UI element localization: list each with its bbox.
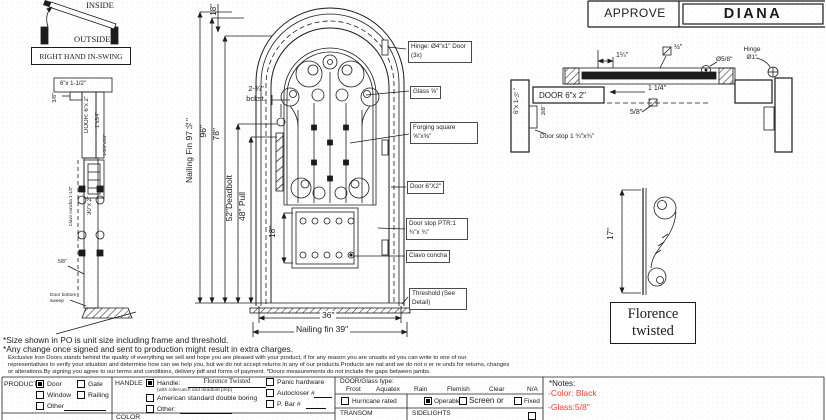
left-door-label: DOOR: 6"x 2": [84, 96, 90, 133]
product-railing-label: Railing: [88, 392, 109, 400]
fixed-label: Fixed: [524, 398, 540, 405]
handle-boring-label: American standard double boring: [157, 395, 257, 403]
hsec-door-stop-label: Door stop 1 ¾"x¾": [540, 133, 594, 140]
callout-forging-square: Forging square ⅝"x⅝": [410, 122, 478, 144]
glass-type-aquatex: Aquatex: [376, 386, 400, 393]
scroll-ornament-drawing: [622, 188, 676, 295]
dim-18-top: 18": [209, 4, 218, 16]
glass-type-header: DOOR/Glass type:: [340, 378, 394, 385]
left-panel-label: 30"x 2": [87, 196, 93, 215]
handle-value: Florence Twisted: [188, 378, 266, 386]
hurricane-rated-label: Hurricane rated: [352, 398, 397, 405]
notes-glass: -Glass:5/8": [548, 403, 590, 413]
left-lock-dim-label: 1-3/4"x3/4": [102, 134, 107, 156]
dim-48-pull: 48" Pull: [237, 192, 247, 221]
product-window-label: Window: [47, 392, 71, 400]
left-stop-label: 1"x3/4": [95, 112, 101, 128]
dim-52-deadbolt: 52"Deadbolt: [224, 175, 234, 222]
product-window-checkbox[interactable]: [36, 391, 44, 399]
fineprint-line3: or alterations.By signing you agree to o…: [8, 369, 431, 376]
callout-door-stop: Door stop PTR:1 ¾"x ¾": [406, 218, 468, 240]
hinge-symbol: [768, 67, 778, 77]
callout-threshold: Threshold (See Detail): [409, 288, 467, 310]
handle-option-label: Handle:: [157, 380, 180, 388]
footnote-change: *Any change once signed and sent to prod…: [3, 345, 293, 355]
hsec-dim-58: 5/8": [630, 109, 642, 117]
handle-boring-checkbox[interactable]: [146, 394, 154, 402]
fineprint-line2: representatives to verify your situation…: [8, 362, 509, 369]
handle-checkbox[interactable]: [146, 379, 154, 387]
left-offset-label: 3/8": [52, 93, 58, 103]
transom-label: TRANSOM: [340, 410, 373, 417]
dim-18-panel: 18": [268, 226, 277, 238]
approve-cell: APPROVE: [592, 7, 678, 21]
dim-nailing-fin-width: Nailing fin 39": [294, 325, 350, 335]
hsec-door-label: DOOR 6"x 2": [539, 91, 586, 100]
handle-other-checkbox[interactable]: [146, 405, 154, 413]
hsec-dim-phi58: Ø5/8": [716, 56, 732, 63]
scroll-dim-17: 17": [606, 228, 615, 240]
notes-header: *Notes:: [549, 379, 575, 388]
operable-checkbox[interactable]: [424, 397, 432, 405]
handle-section-label: HANDLE: [115, 380, 143, 388]
hsec-offset-label: 3/8": [541, 105, 547, 115]
callout-door: Door 6"X2": [407, 181, 444, 194]
glass-type-na: N/A: [527, 386, 538, 393]
callout-hinge: Hinge: Ø4"x1" Door (3x): [408, 41, 472, 63]
operable-label: Operable: [434, 398, 461, 405]
glass-type-rain: Rain: [414, 386, 427, 393]
callout-leader-lines: [350, 47, 409, 304]
fineprint-line1: Exclusive Iron Doors stands behind the q…: [8, 355, 466, 362]
panic-hardware-label: Panic hardware: [277, 379, 324, 387]
scroll-name-label: Florence twisted: [610, 302, 696, 344]
glass-type-frost: Frost: [346, 386, 361, 393]
product-gate-checkbox[interactable]: [77, 380, 85, 388]
pbar-checkbox[interactable]: [266, 400, 274, 408]
glass-type-clear: Clear: [489, 386, 505, 393]
product-section-label: PRODUCT:: [4, 381, 39, 389]
hurricane-rated-checkbox[interactable]: [341, 397, 349, 405]
screen-checkbox[interactable]: [459, 397, 467, 405]
sidelights-checkbox[interactable]: [528, 412, 536, 420]
pbar-field[interactable]: [306, 407, 326, 409]
dim-96: 96": [198, 125, 208, 137]
autocloser-field[interactable]: [314, 396, 332, 398]
screen-label: Screen or: [469, 396, 504, 405]
sidelights-label: SIDELIGHTS: [412, 410, 451, 417]
inside-label: INSIDE: [86, 1, 114, 11]
product-other-field[interactable]: [64, 409, 106, 411]
dim-78: 78": [211, 128, 221, 140]
left-clavo-label: Clavo concha 1-1/2": [68, 186, 73, 226]
square-half-symbol: [663, 47, 671, 55]
panic-hardware-checkbox[interactable]: [266, 378, 274, 386]
handle-other-field[interactable]: [180, 412, 232, 414]
product-railing-checkbox[interactable]: [77, 391, 85, 399]
product-gate-label: Gate: [88, 381, 103, 389]
door-shop-drawing-sheet: INSIDE OUTSIDE RIGHT HAND IN-SWING 6"x 1…: [0, 0, 826, 420]
hsec-dim-1-14-bottom: 1 1/4": [648, 85, 666, 93]
autocloser-checkbox[interactable]: [266, 389, 274, 397]
fixed-checkbox[interactable]: [514, 397, 522, 405]
callout-glass: Glass ⅝": [410, 86, 441, 99]
callout-clavo-concha: Clavo concha: [406, 250, 450, 263]
color-section-label: COLOR: [116, 414, 140, 420]
door-elevation-drawing: [250, 8, 410, 313]
dim-36-width: 36": [320, 311, 336, 321]
elevation-dimension-lines: [195, 4, 407, 337]
hsec-hinge-label: Hinge Ø1": [738, 46, 766, 62]
pbar-label: P. Bar #: [277, 401, 301, 409]
handle-other-label: Other:: [157, 406, 176, 414]
hsec-dim-half: ½": [674, 44, 682, 52]
notes-color: -Color: Black: [548, 389, 597, 399]
left-head-jamb-label: 6"x 1-1/2": [60, 81, 86, 88]
product-door-checkbox[interactable]: [36, 380, 44, 388]
product-other-label: Other: [47, 403, 64, 411]
dim-nailing-fin-height: Nailing Fin 97½": [184, 118, 194, 183]
approved-name-cell: DIANA: [683, 6, 823, 23]
swing-direction-label: RIGHT HAND IN-SWING: [31, 47, 131, 65]
left-bottom-dim-label: 5/8": [58, 260, 67, 266]
handle-note: (with rollercatch and deadbolt prep): [157, 388, 232, 394]
glass-type-flemish: Flemish: [447, 386, 470, 393]
outside-label: OUTSIDE: [74, 35, 110, 45]
door-bottom-sweep-label: Door bottom sweep: [50, 293, 84, 305]
dim-backset: 2-¾" bckst.: [240, 84, 272, 104]
hsec-dim-1-14-top: 1¼": [616, 52, 628, 60]
hsec-jamb-label: 6"x 1-½": [513, 88, 520, 114]
product-door-label: Door: [47, 381, 62, 389]
product-other-checkbox[interactable]: [36, 402, 44, 410]
autocloser-label: Autocloser #: [277, 390, 315, 398]
